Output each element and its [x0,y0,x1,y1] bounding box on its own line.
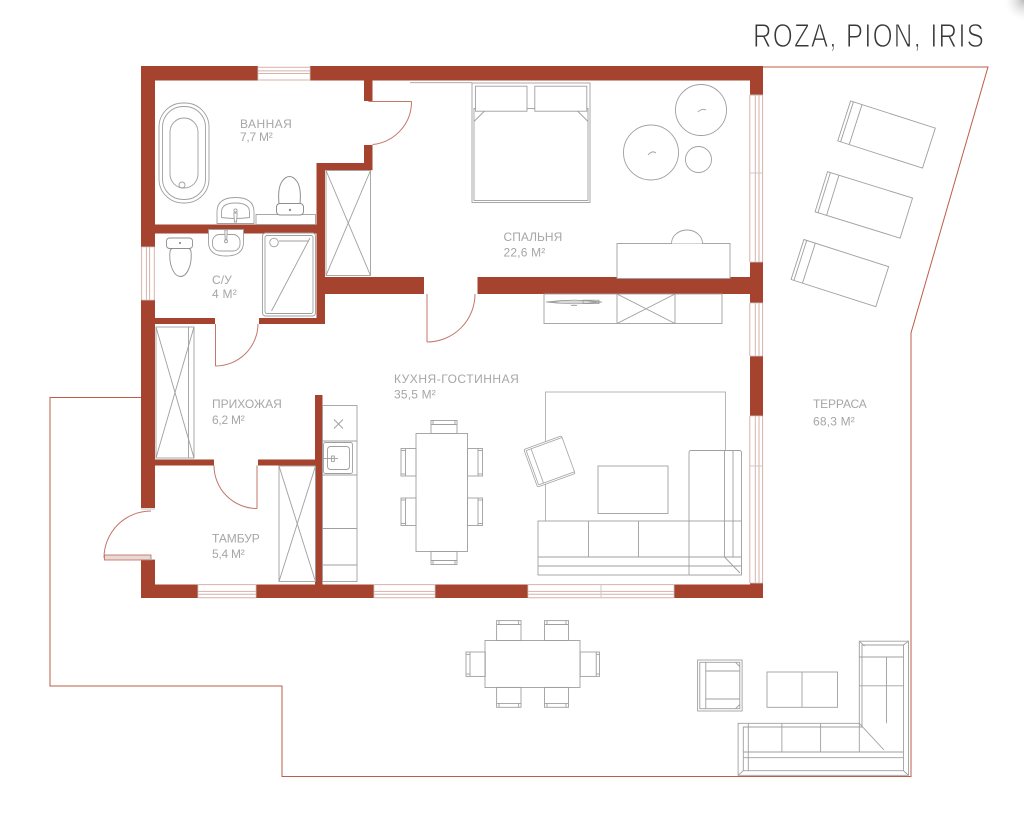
svg-text:ТЕРРАСА: ТЕРРАСА [813,397,868,411]
svg-text:КУХНЯ-ГОСТИННАЯ: КУХНЯ-ГОСТИННАЯ [394,372,520,386]
svg-text:ТАМБУР: ТАМБУР [212,532,261,546]
svg-text:С/У: С/У [212,273,233,287]
svg-text:35,5 М²: 35,5 М² [394,388,437,402]
svg-text:68,3 М²: 68,3 М² [813,415,856,429]
svg-text:СПАЛЬНЯ: СПАЛЬНЯ [504,230,564,244]
svg-text:22,6 М²: 22,6 М² [504,246,547,260]
svg-text:6,2 М²: 6,2 М² [212,413,246,427]
svg-text:ПРИХОЖАЯ: ПРИХОЖАЯ [212,397,283,411]
svg-text:7,7 М²: 7,7 М² [240,130,274,144]
svg-text:ВАННАЯ: ВАННАЯ [240,117,293,131]
svg-text:5,4 М²: 5,4 М² [212,547,246,561]
svg-text:ROZA, PION, IRIS: ROZA, PION, IRIS [753,18,985,55]
svg-text:4 М²: 4 М² [212,287,238,301]
